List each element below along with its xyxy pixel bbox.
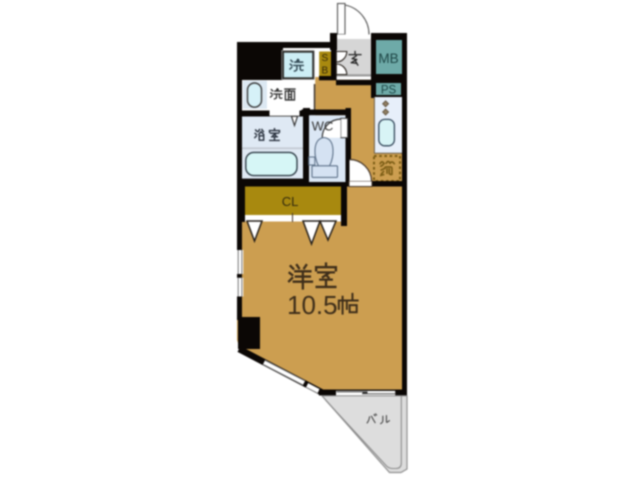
svg-text:S: S bbox=[321, 53, 328, 64]
svg-text:10.5: 10.5 bbox=[287, 290, 338, 320]
svg-text:B: B bbox=[321, 66, 328, 77]
svg-text:CL: CL bbox=[282, 194, 299, 209]
svg-text:PS: PS bbox=[381, 85, 397, 97]
svg-text:MB: MB bbox=[378, 51, 398, 66]
svg-text:WC: WC bbox=[312, 119, 334, 134]
